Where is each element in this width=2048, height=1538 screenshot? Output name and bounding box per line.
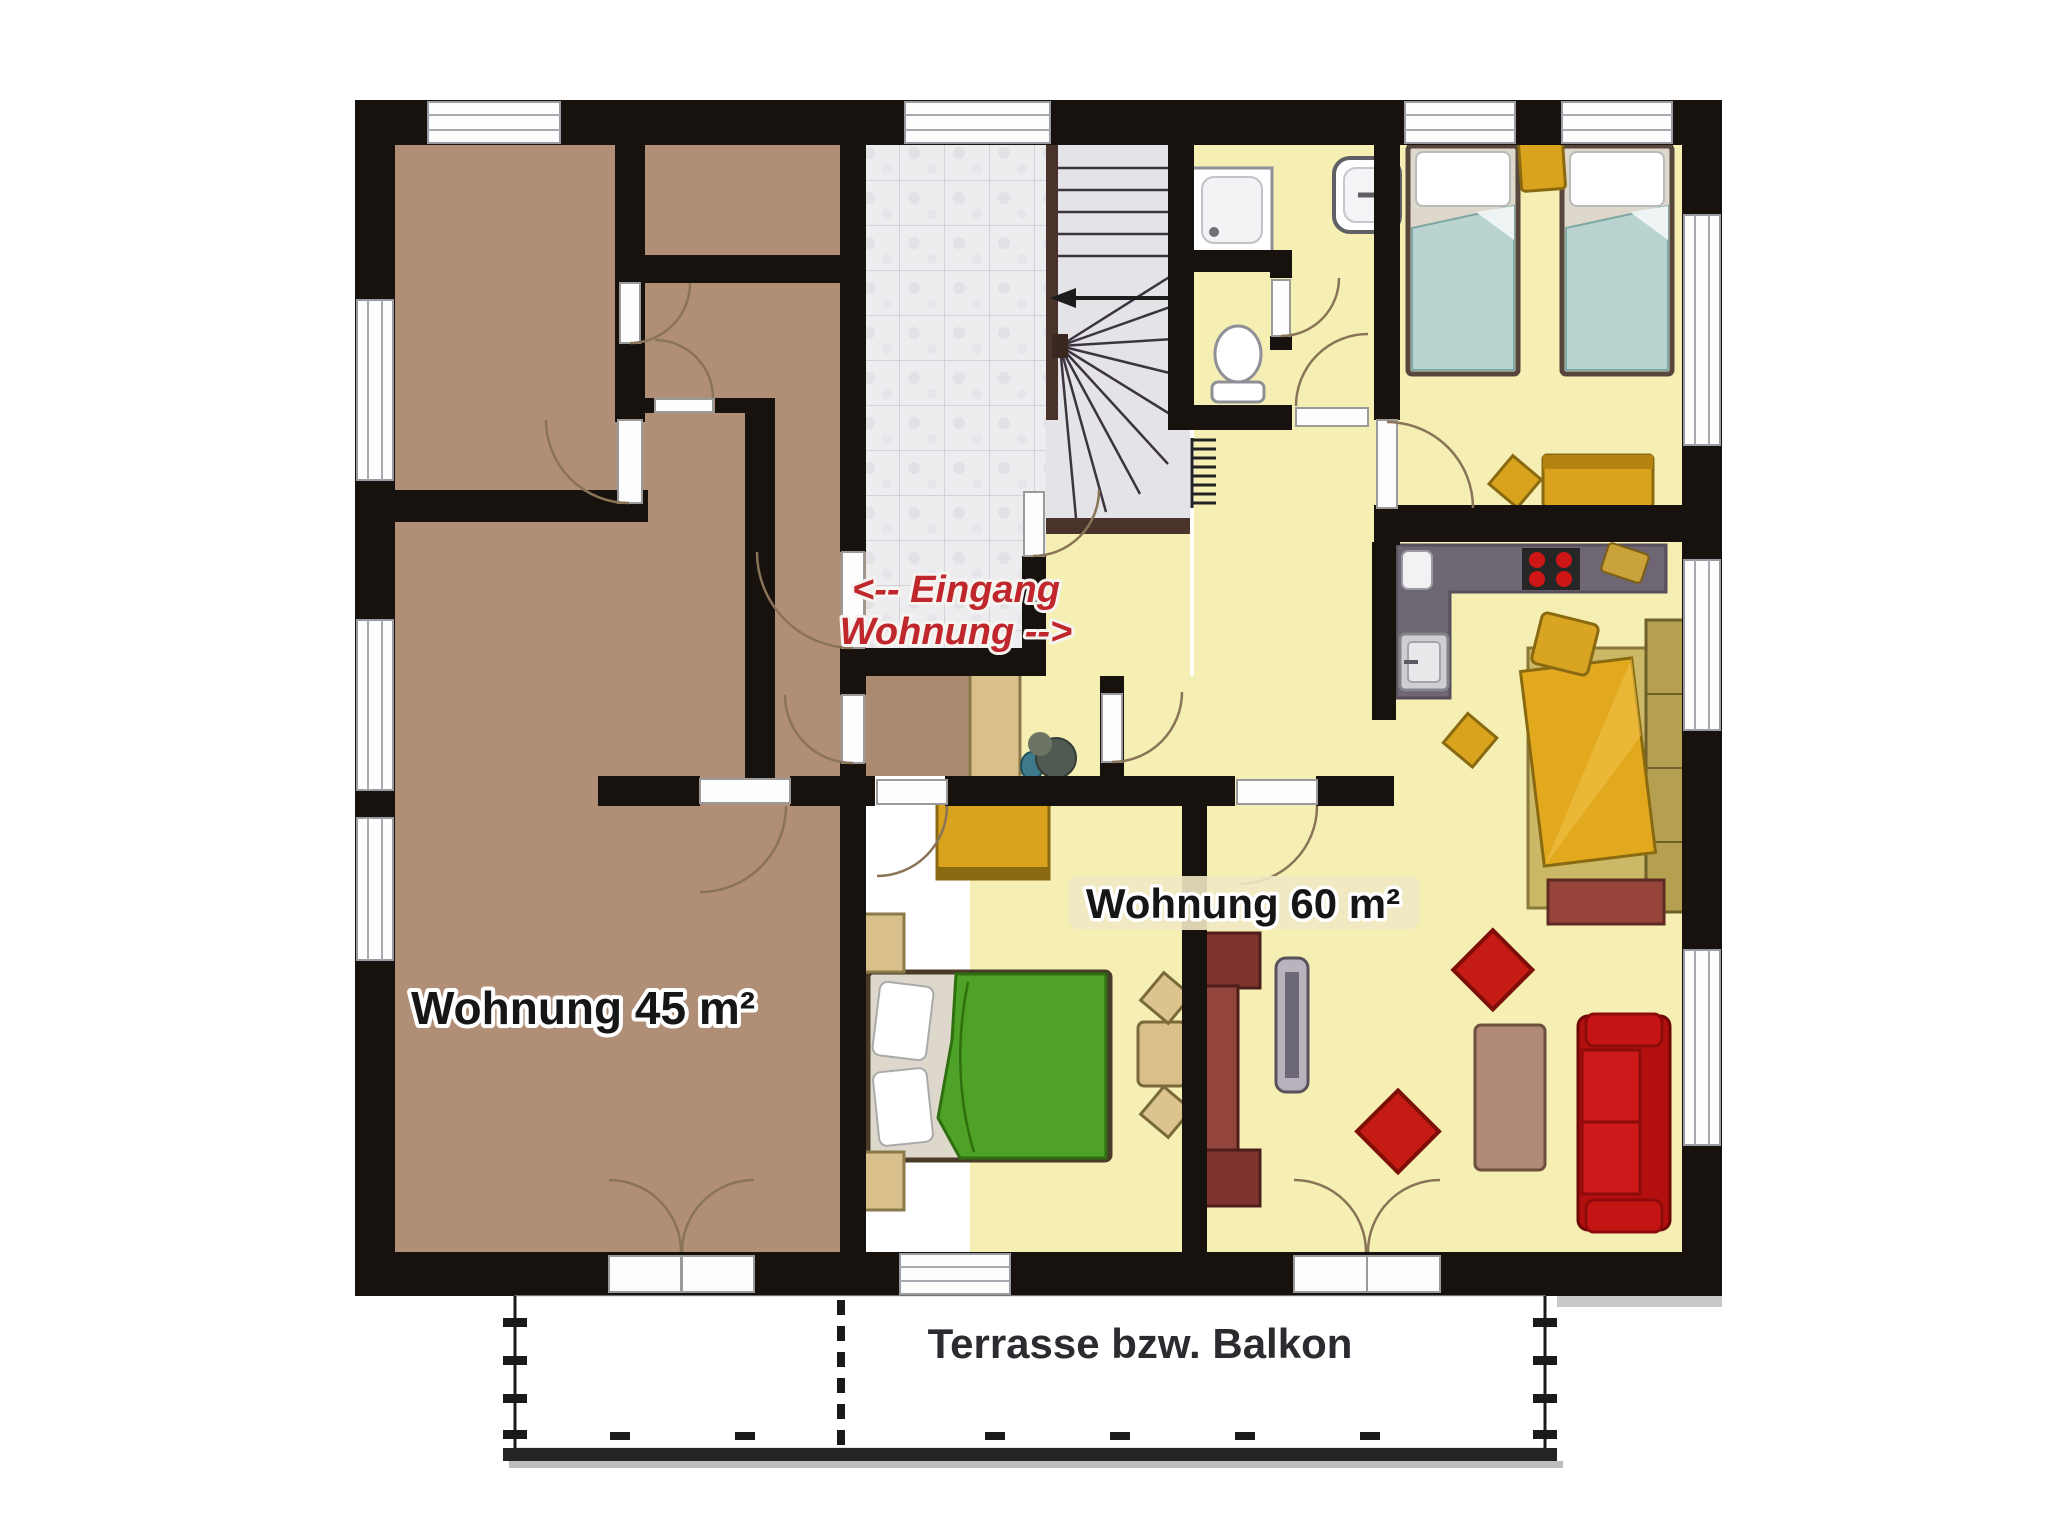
stove [1522, 548, 1580, 590]
window [1684, 950, 1720, 1145]
blanket [1412, 206, 1514, 370]
red-sofa [1578, 1014, 1670, 1232]
stair-landing-edge [1046, 518, 1190, 534]
hall-wardrobe [970, 668, 1020, 778]
dining-table [1138, 1022, 1186, 1086]
stair-post [1052, 334, 1068, 358]
pillow [872, 1067, 933, 1146]
appliance [1400, 634, 1448, 690]
floor-vestibule [866, 676, 970, 776]
window [357, 300, 393, 480]
double-bed-green [868, 972, 1110, 1160]
kitchen-sink [1402, 551, 1432, 589]
wardrobe [937, 803, 1049, 879]
window [1405, 102, 1515, 143]
nightstand [1518, 139, 1565, 192]
label-terrace: Terrasse bzw. Balkon [928, 1320, 1353, 1367]
nightstand [864, 914, 904, 972]
single-bed-2 [1562, 146, 1672, 374]
window [357, 620, 393, 790]
building-shadow [1557, 1296, 1722, 1307]
tv [1276, 958, 1308, 1092]
blanket [1566, 206, 1668, 370]
window [1684, 215, 1720, 445]
gold-blanket [1520, 658, 1655, 866]
stair-stringer [1046, 145, 1058, 420]
floor-plan-page: Wohnung 45 m² Wohnung 60 m² <-- Eingang … [0, 0, 2048, 1538]
label-apartment-60: Wohnung 60 m² [1086, 880, 1400, 927]
toilet [1212, 326, 1264, 402]
single-bed-1 [1408, 146, 1518, 374]
coffee-table [1475, 1025, 1545, 1170]
window [428, 102, 560, 143]
nightstand [864, 1152, 904, 1210]
window [1684, 560, 1720, 730]
dresser [1543, 455, 1653, 507]
pillow [872, 981, 935, 1061]
pillow [1570, 152, 1664, 206]
pillow [1416, 152, 1510, 206]
label-entrance-line1: <-- Eingang [852, 569, 1060, 611]
green-duvet [938, 974, 1106, 1158]
window [1562, 102, 1672, 143]
floor-plan: Wohnung 45 m² Wohnung 60 m² <-- Eingang … [0, 0, 2048, 1538]
label-entrance-line2: Wohnung --> [840, 611, 1073, 653]
window [905, 102, 1050, 143]
window [357, 818, 393, 960]
terrace-rail [503, 1448, 1557, 1461]
ottoman [1548, 880, 1664, 924]
window [900, 1254, 1010, 1294]
label-apartment-45: Wohnung 45 m² [411, 982, 755, 1034]
shower [1192, 168, 1272, 252]
